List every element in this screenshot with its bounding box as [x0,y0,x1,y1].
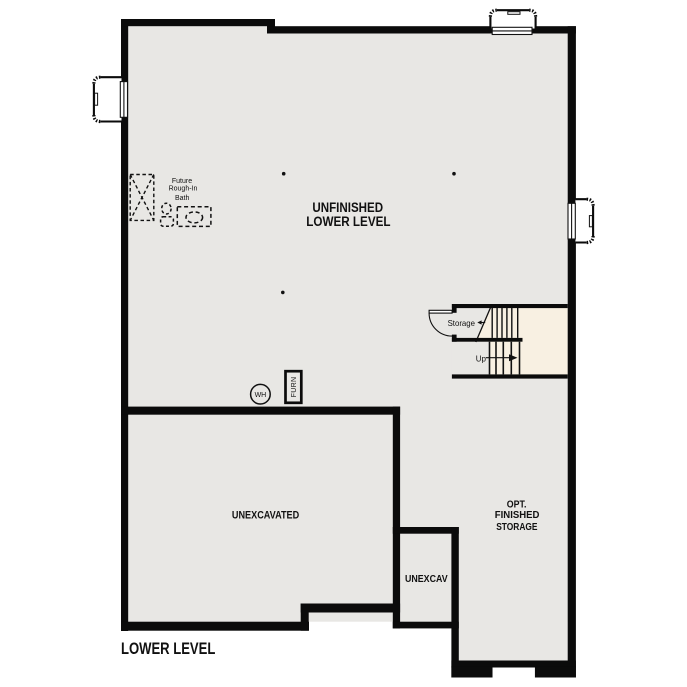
svg-text:Bath: Bath [175,195,190,202]
svg-text:Future: Future [172,178,192,185]
svg-text:Up: Up [476,355,487,364]
svg-text:Rough-In: Rough-In [169,186,198,193]
svg-text:STORAGE: STORAGE [496,522,538,533]
svg-text:UNEXCAVATED: UNEXCAVATED [232,510,299,522]
svg-text:FINISHED: FINISHED [495,510,540,521]
svg-text:FURN: FURN [291,377,298,398]
svg-text:UNEXCAV: UNEXCAV [405,573,448,585]
svg-text:LOWER LEVEL: LOWER LEVEL [121,640,215,658]
svg-text:LOWER LEVEL: LOWER LEVEL [306,214,390,230]
svg-text:WH: WH [255,392,267,399]
svg-text:OPT.: OPT. [507,500,527,511]
svg-text:Storage: Storage [448,319,476,328]
